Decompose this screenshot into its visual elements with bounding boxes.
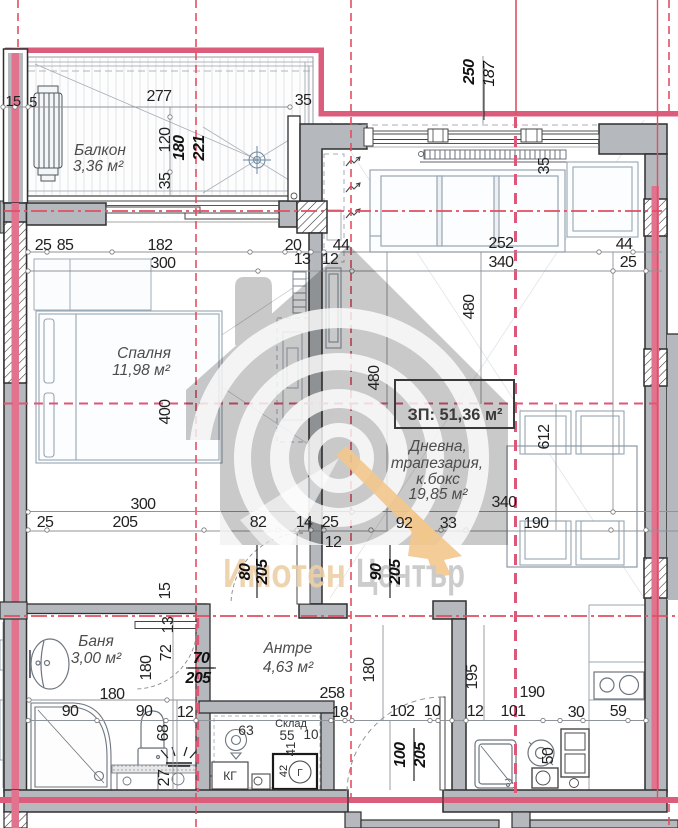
svg-text:Баня: Баня	[78, 633, 114, 650]
svg-text:трапезария,: трапезария,	[391, 455, 483, 472]
svg-text:480: 480	[461, 294, 478, 320]
svg-text:25: 25	[620, 254, 637, 271]
svg-text:100: 100	[392, 742, 409, 768]
svg-text:13: 13	[160, 616, 177, 633]
svg-text:400: 400	[157, 399, 174, 425]
svg-text:5: 5	[29, 95, 37, 111]
svg-text:250: 250	[461, 59, 478, 86]
svg-text:КГ: КГ	[223, 769, 237, 783]
svg-text:19,85 м²: 19,85 м²	[409, 486, 469, 503]
svg-text:180: 180	[171, 135, 188, 161]
svg-text:340: 340	[492, 494, 518, 511]
svg-text:12: 12	[325, 534, 342, 551]
svg-text:102: 102	[390, 703, 416, 720]
svg-text:25: 25	[322, 514, 339, 531]
svg-text:190: 190	[524, 515, 550, 532]
svg-text:92: 92	[396, 515, 413, 532]
svg-text:180: 180	[361, 657, 378, 683]
svg-text:12: 12	[322, 251, 339, 268]
svg-text:41: 41	[283, 742, 298, 756]
svg-text:612: 612	[536, 424, 553, 450]
svg-text:25: 25	[35, 237, 52, 254]
svg-text:85: 85	[57, 237, 74, 254]
svg-text:300: 300	[131, 496, 157, 513]
svg-text:70: 70	[193, 650, 210, 667]
svg-text:33: 33	[440, 515, 457, 532]
svg-text:ЗП: 51,36 м²: ЗП: 51,36 м²	[408, 406, 503, 424]
svg-text:27: 27	[156, 769, 173, 786]
svg-text:Спалня: Спалня	[117, 345, 171, 362]
svg-text:15: 15	[6, 94, 21, 110]
svg-text:180: 180	[138, 655, 155, 681]
svg-text:300: 300	[151, 255, 177, 272]
svg-text:340: 340	[489, 254, 515, 271]
svg-text:80: 80	[237, 563, 254, 580]
svg-text:277: 277	[147, 88, 173, 105]
svg-text:Г: Г	[297, 768, 303, 779]
svg-text:44: 44	[616, 236, 633, 253]
svg-text:Антре: Антре	[263, 640, 313, 657]
svg-text:10: 10	[303, 727, 318, 742]
svg-text:25: 25	[37, 514, 54, 531]
svg-text:72: 72	[158, 644, 175, 661]
svg-text:59: 59	[610, 703, 627, 720]
svg-text:68: 68	[155, 724, 172, 741]
svg-text:90: 90	[136, 703, 153, 720]
svg-text:4,63 м²: 4,63 м²	[263, 659, 314, 676]
svg-text:205: 205	[113, 514, 139, 531]
svg-text:35: 35	[295, 92, 312, 109]
svg-text:480: 480	[366, 365, 383, 391]
svg-text:190: 190	[520, 684, 546, 701]
svg-text:30: 30	[568, 704, 585, 721]
svg-text:35: 35	[157, 172, 174, 189]
svg-text:195: 195	[464, 664, 481, 690]
svg-text:82: 82	[250, 514, 267, 531]
svg-text:10: 10	[424, 703, 441, 720]
svg-text:258: 258	[320, 685, 346, 702]
svg-text:18: 18	[332, 704, 349, 721]
svg-text:205: 205	[185, 670, 213, 687]
svg-text:3,00 м²: 3,00 м²	[71, 650, 122, 667]
svg-text:63: 63	[238, 722, 254, 738]
svg-text:50: 50	[540, 747, 557, 764]
svg-text:221: 221	[191, 135, 208, 162]
svg-text:Дневна,: Дневна,	[407, 438, 467, 455]
svg-text:35: 35	[536, 157, 553, 174]
svg-text:90: 90	[62, 703, 79, 720]
svg-text:14: 14	[296, 514, 313, 531]
svg-text:182: 182	[148, 237, 174, 254]
svg-text:3,36 м²: 3,36 м²	[73, 158, 124, 175]
svg-text:12: 12	[177, 704, 194, 721]
svg-text:42: 42	[278, 765, 290, 777]
svg-text:90: 90	[368, 563, 385, 580]
svg-text:13: 13	[294, 251, 311, 268]
svg-text:180: 180	[100, 686, 126, 703]
svg-text:101: 101	[501, 703, 527, 720]
svg-text:15: 15	[157, 582, 174, 599]
svg-text:11,98 м²: 11,98 м²	[112, 362, 171, 379]
svg-text:55: 55	[279, 728, 294, 743]
svg-text:252: 252	[489, 235, 515, 252]
svg-text:Балкон: Балкон	[74, 142, 126, 159]
svg-text:12: 12	[467, 703, 484, 720]
